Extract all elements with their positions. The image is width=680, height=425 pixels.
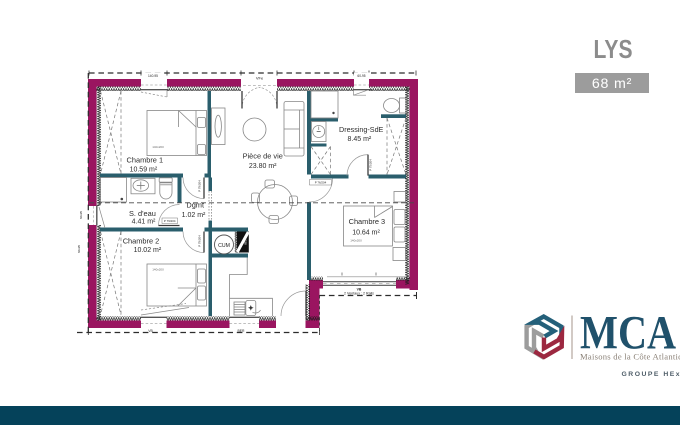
svg-text:140x200: 140x200: [350, 239, 362, 243]
svg-text:60-95: 60-95: [357, 74, 365, 78]
svg-text:140x200: 140x200: [152, 268, 164, 272]
svg-text:Dressing-SdE: Dressing-SdE: [339, 125, 384, 134]
svg-text:P 76/204: P 76/204: [315, 181, 327, 185]
svg-text:140-95: 140-95: [148, 74, 158, 78]
svg-text:LYS: LYS: [594, 34, 633, 64]
svg-text:10.64 m²: 10.64 m²: [352, 229, 380, 236]
svg-text:P 79/204: P 79/204: [164, 219, 176, 223]
svg-text:Dgmt: Dgmt: [186, 200, 204, 209]
svg-text:Chambre 1: Chambre 1: [127, 156, 164, 165]
svg-text:140x200: 140x200: [152, 145, 164, 149]
svg-text:CUM: CUM: [218, 243, 230, 249]
svg-text:Maisons de la Côte Atlantique: Maisons de la Côte Atlantique: [580, 352, 680, 362]
svg-text:2 Ventaux : 2 Rails: 2 Ventaux : 2 Rails: [344, 292, 374, 296]
svg-text:S. d'eau: S. d'eau: [129, 209, 156, 218]
svg-text:4.41 m²: 4.41 m²: [132, 218, 156, 225]
svg-text:8.45 m²: 8.45 m²: [348, 136, 372, 143]
svg-text:60x95: 60x95: [79, 211, 83, 220]
svg-text:BER: BER: [238, 329, 246, 333]
svg-text:1.02 m²: 1.02 m²: [182, 212, 206, 219]
svg-text:VFe: VFe: [256, 76, 264, 81]
svg-text:60x95: 60x95: [77, 245, 81, 254]
svg-text:BEC: BEC: [243, 239, 247, 244]
svg-text:10.59 m²: 10.59 m²: [130, 167, 158, 174]
svg-text:Pièce de vie: Pièce de vie: [243, 152, 283, 161]
svg-text:Chambre 2: Chambre 2: [123, 236, 160, 245]
svg-text:23.80 m²: 23.80 m²: [249, 163, 277, 170]
svg-text:P 75/204: P 75/204: [369, 159, 373, 171]
svg-text:GROUPE HExAôM: GROUPE HExAôM: [622, 371, 680, 378]
svg-text:P 79/204: P 79/204: [198, 180, 202, 192]
svg-text:P 79/204: P 79/204: [198, 235, 202, 247]
svg-text:Chambre 3: Chambre 3: [349, 217, 386, 226]
svg-text:10.02 m²: 10.02 m²: [134, 247, 162, 254]
svg-text:VB: VB: [148, 329, 153, 333]
svg-text:68 m²: 68 m²: [592, 76, 632, 92]
